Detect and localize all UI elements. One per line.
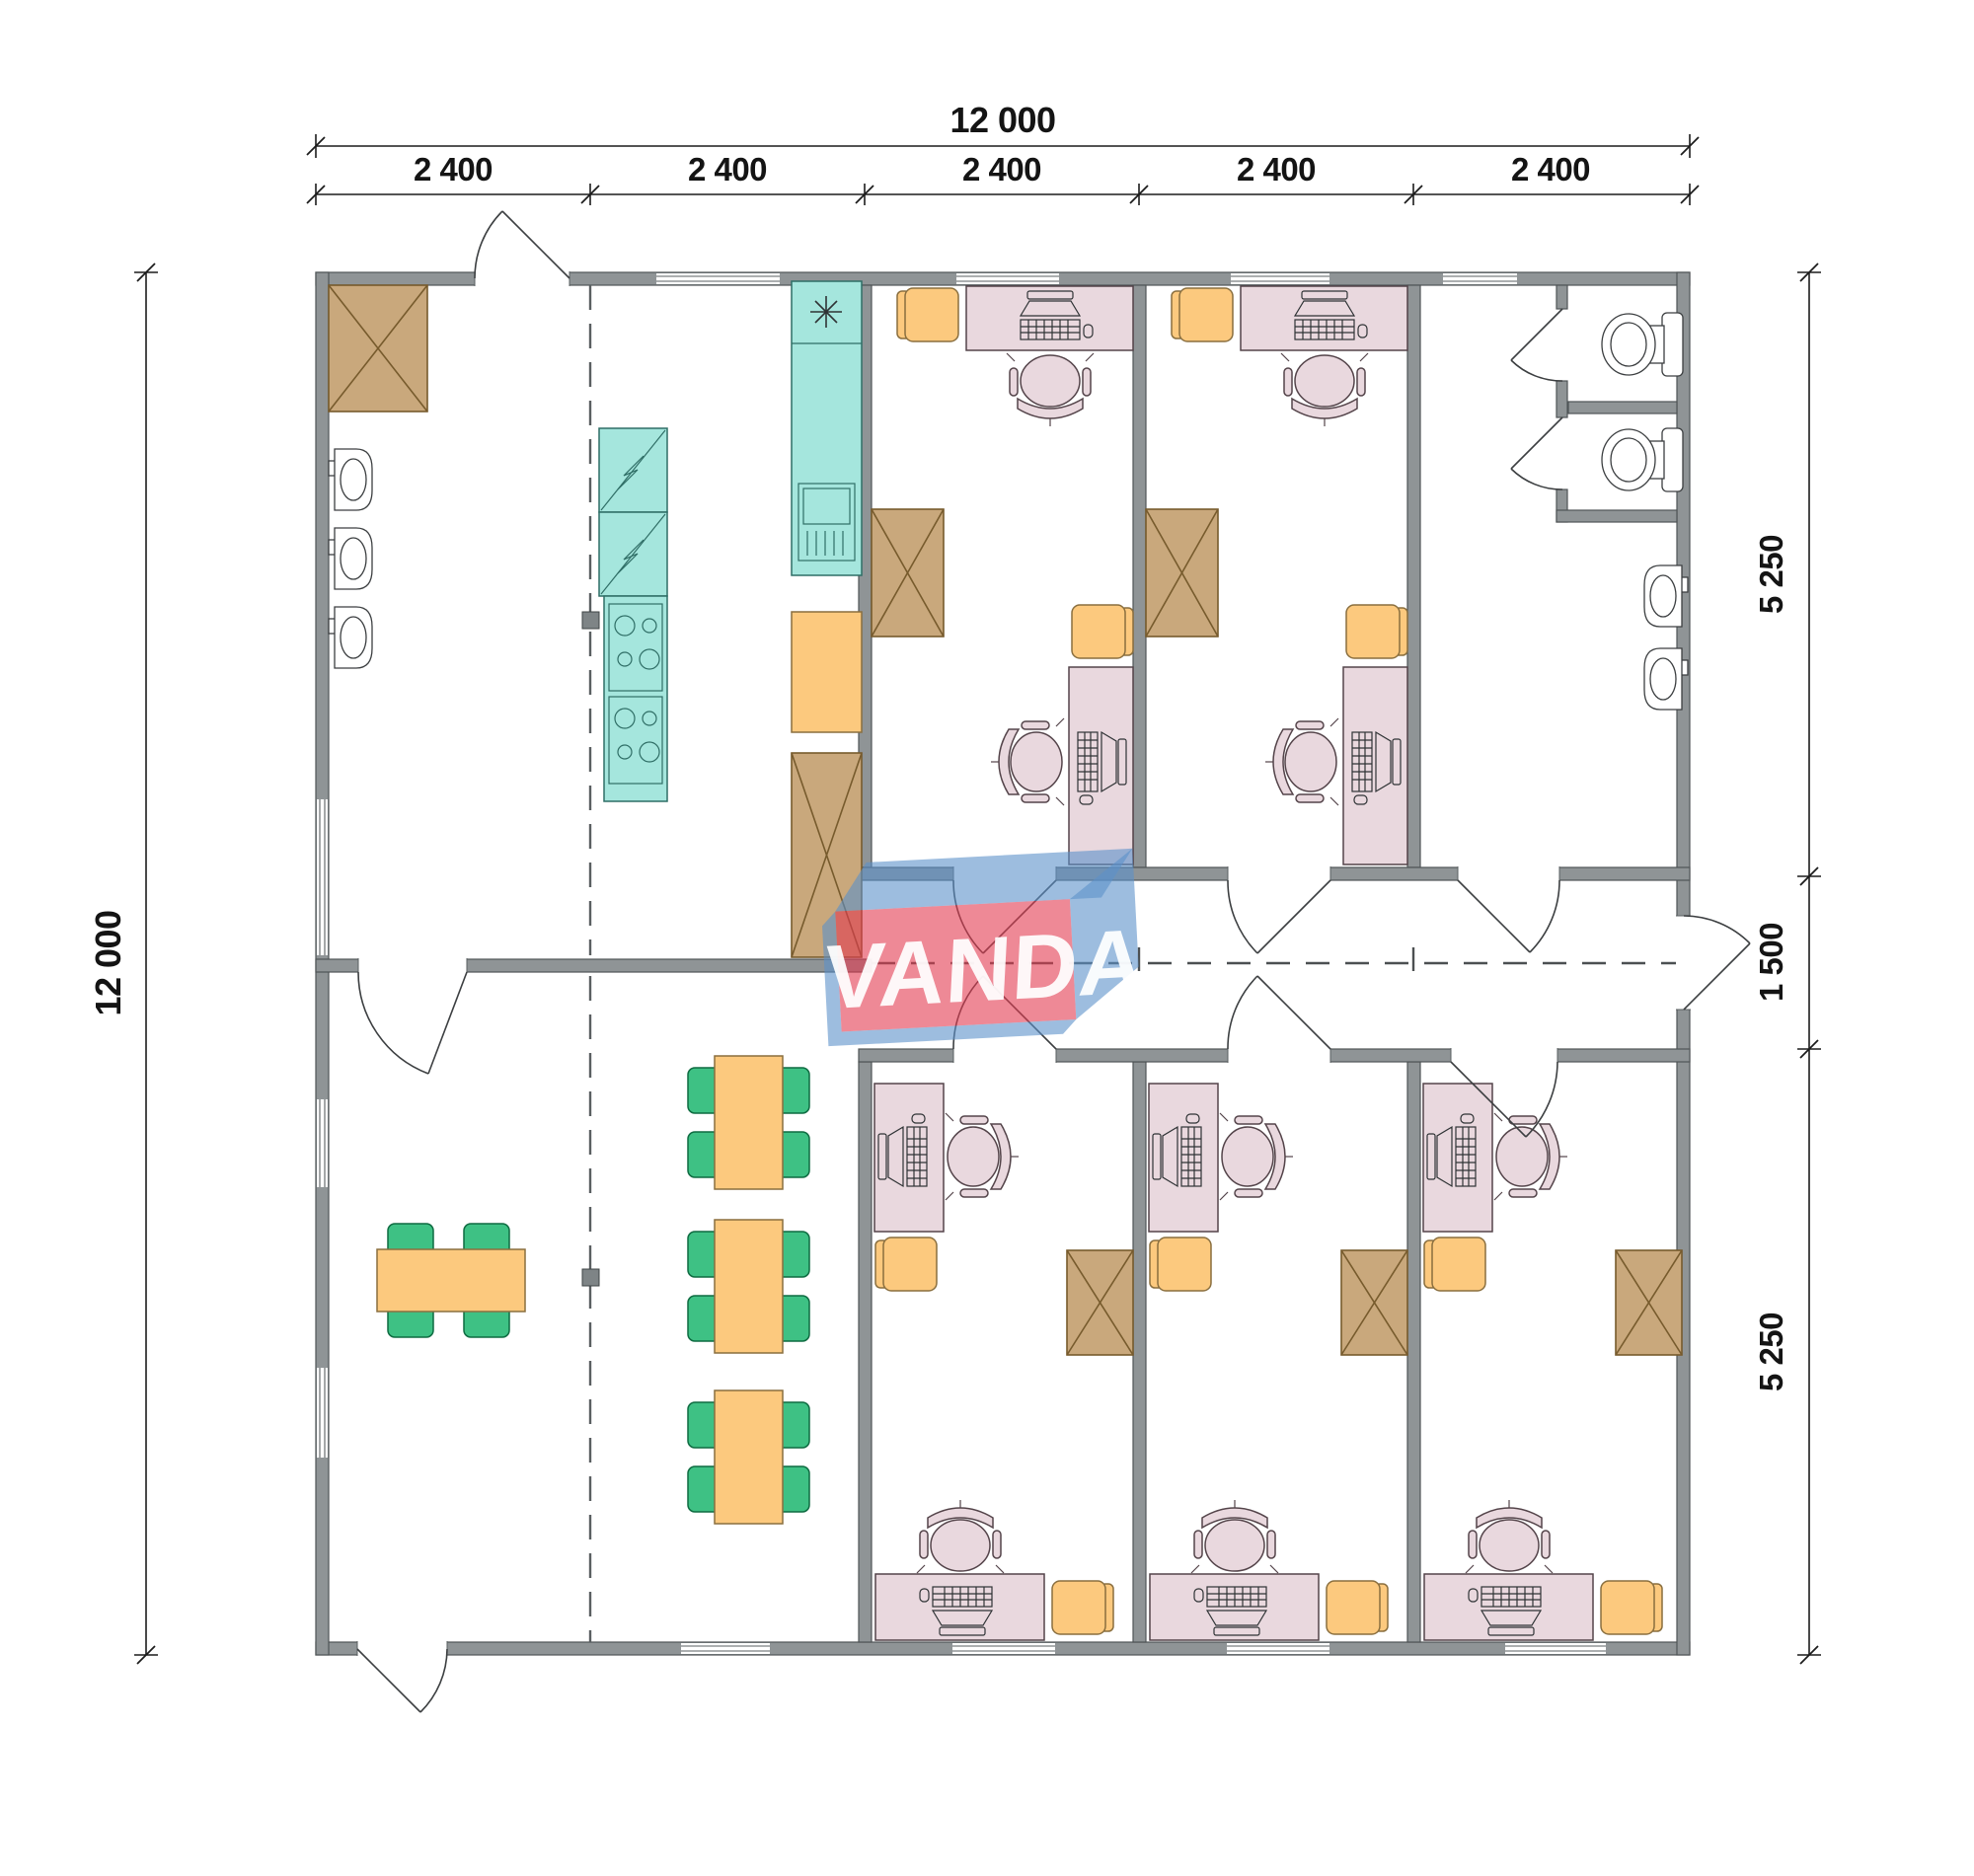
dining-table — [715, 1390, 783, 1524]
wall-interior — [859, 1062, 872, 1642]
office-cabinet — [1341, 1250, 1407, 1355]
wardrobe-cabinet — [329, 285, 427, 412]
dining-table — [715, 1220, 783, 1353]
desk — [1241, 286, 1407, 350]
office-cabinet — [1067, 1250, 1133, 1355]
floor-plan-drawing: 12 000 2 400 2 400 2 400 2 400 2 400 12 … — [0, 0, 1974, 1876]
door-wc-stall-2 — [1511, 417, 1562, 489]
wash-basin — [1644, 648, 1688, 710]
office-cabinet — [1616, 1250, 1682, 1355]
fridge-unit — [599, 428, 667, 512]
guest-chair — [1172, 288, 1233, 341]
office-chair — [1220, 1113, 1293, 1200]
guest-chair — [1346, 605, 1407, 658]
window — [1505, 1643, 1606, 1654]
toilet — [1602, 428, 1683, 491]
window — [317, 799, 328, 955]
office-chair — [1494, 1113, 1567, 1200]
wall-interior — [1407, 285, 1420, 867]
wash-basin — [1644, 565, 1688, 627]
dim-seg-5: 2 400 — [1511, 151, 1590, 188]
wash-basin — [329, 607, 372, 668]
toilet — [1602, 313, 1683, 376]
dim-seg-4: 2 400 — [1237, 151, 1316, 188]
dimension-top-overall: 12 000 — [307, 100, 1699, 158]
dimension-right: 5 250 1 500 5 250 — [1753, 263, 1821, 1664]
wall-stall-front — [1556, 381, 1567, 417]
office-cabinet — [1146, 509, 1218, 637]
wall-interior — [1133, 1062, 1146, 1642]
dim-seg-2: 2 400 — [688, 151, 767, 188]
logo-text: VANDA — [822, 909, 1148, 1028]
office-chair — [991, 718, 1064, 805]
door-bathroom — [1458, 866, 1559, 952]
window — [317, 1368, 328, 1458]
structural-column — [582, 612, 599, 629]
stove-unit — [604, 596, 667, 801]
window — [656, 273, 780, 284]
dining-table — [377, 1249, 525, 1312]
office-chair — [1191, 1500, 1278, 1573]
window — [956, 273, 1059, 284]
vanda-logo: VANDA — [813, 848, 1154, 1046]
window — [952, 1643, 1055, 1654]
guest-chair — [897, 288, 958, 341]
side-table — [792, 612, 862, 732]
guest-chair — [1052, 1581, 1113, 1634]
dim-right-3: 5 250 — [1753, 1313, 1789, 1391]
office-chair — [1466, 1500, 1553, 1573]
desk — [874, 1084, 944, 1232]
desk — [1423, 1084, 1492, 1232]
wall-stall-front — [1556, 285, 1567, 309]
door-kitchen-to-dining — [358, 958, 467, 1074]
wall-interior — [1133, 285, 1146, 867]
dim-seg-1: 2 400 — [414, 151, 493, 188]
door-office-bottom-2 — [1228, 976, 1330, 1063]
window — [681, 1643, 770, 1654]
guest-chair — [1150, 1238, 1211, 1291]
guest-chair — [1327, 1581, 1388, 1634]
office-chair — [1265, 718, 1338, 805]
dim-right-1: 5 250 — [1753, 535, 1789, 614]
desk — [966, 286, 1133, 350]
dim-left-total: 12 000 — [88, 910, 128, 1015]
window — [1227, 1643, 1329, 1654]
door-corridor-exit — [1676, 916, 1750, 1010]
kitchen-counter-sink — [792, 281, 862, 575]
office-bottom-1 — [874, 1084, 1133, 1640]
floor-plan-canvas: 12 000 2 400 2 400 2 400 2 400 2 400 12 … — [0, 0, 1974, 1876]
guest-chair — [1424, 1238, 1485, 1291]
office-chair — [1007, 353, 1094, 426]
office-chair — [917, 1500, 1004, 1573]
room-dining — [377, 1056, 809, 1524]
wash-basin — [329, 449, 372, 510]
wall-stall-divider — [1568, 402, 1677, 413]
window — [317, 1099, 328, 1187]
door-dining-exit — [357, 1641, 447, 1712]
guest-chair — [875, 1238, 937, 1291]
door-office-top-2 — [1228, 866, 1330, 953]
dim-right-2: 1 500 — [1753, 923, 1789, 1002]
guest-chair — [1072, 605, 1133, 658]
office-chair — [1281, 353, 1368, 426]
office-bottom-3 — [1423, 1084, 1682, 1640]
office-chair — [946, 1113, 1019, 1200]
desk — [1149, 1084, 1218, 1232]
dimension-top-segments: 2 400 2 400 2 400 2 400 2 400 — [307, 151, 1699, 205]
window — [1231, 273, 1329, 284]
office-bottom-2 — [1149, 1084, 1407, 1640]
window — [1443, 273, 1517, 284]
fridge-unit — [599, 512, 667, 596]
guest-chair — [1601, 1581, 1662, 1634]
office-top-2 — [1146, 286, 1407, 864]
office-top-1 — [872, 286, 1133, 864]
door-main-entrance — [475, 211, 569, 286]
wash-basin — [329, 528, 372, 589]
dim-top-total: 12 000 — [949, 100, 1055, 140]
door-wc-stall-1 — [1511, 309, 1562, 381]
structural-column — [582, 1269, 599, 1286]
dim-seg-3: 2 400 — [962, 151, 1041, 188]
wall-interior — [1407, 1062, 1420, 1642]
wall-stall-bottom — [1556, 510, 1677, 522]
dimension-left: 12 000 — [88, 263, 158, 1664]
office-cabinet — [872, 509, 944, 637]
dining-table — [715, 1056, 783, 1189]
